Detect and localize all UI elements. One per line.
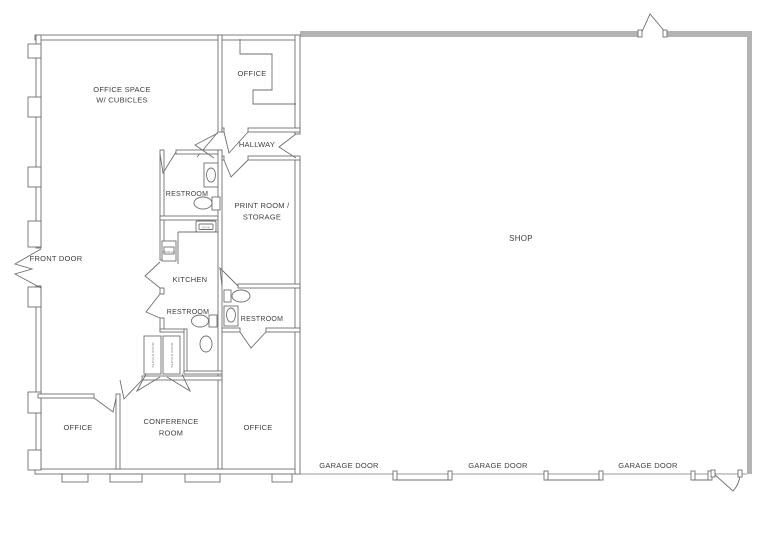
office-left-wall-upper (36, 35, 41, 248)
office-top-label: OFFICE (238, 69, 267, 78)
office-top-wall (35, 35, 300, 40)
toilet-tank (209, 315, 217, 327)
wall (160, 329, 186, 332)
shop-right-wall (747, 31, 752, 474)
office-shop-wall-lower (295, 158, 300, 474)
wall (222, 128, 224, 132)
office-left-wall-lower (36, 286, 41, 474)
pilaster (28, 167, 41, 187)
pilaster (28, 44, 41, 58)
wall (266, 328, 300, 332)
wall (222, 156, 224, 160)
sink-basin (207, 168, 216, 182)
office-bottom-wall (35, 469, 300, 474)
door-jamb (711, 470, 715, 477)
toilet-tank (212, 197, 220, 210)
office-space-label-1: OFFICE SPACE (93, 85, 150, 94)
wall (218, 35, 222, 132)
garage-door-2-label: GARAGE DOOR (468, 461, 528, 470)
restroom-mid-label: RESTROOM (167, 309, 209, 316)
restroom-mid-door (146, 294, 160, 318)
wall (38, 394, 94, 398)
window-sill (110, 474, 142, 482)
window-sill (272, 474, 292, 482)
pier (691, 471, 695, 480)
office-bottom-label: OFFICE (244, 423, 273, 432)
floor-plan-canvas: SINK FRIDGE SERVER ROOM SERVER ROOM OFFI… (0, 0, 776, 559)
restroom-mid-fixtures (192, 315, 218, 352)
window-sill (62, 474, 88, 482)
restroom-right-label: RESTROOM (241, 316, 283, 323)
restroom-upper-fixtures (194, 163, 220, 210)
print-room-top-door (224, 160, 248, 177)
shop-label: SHOP (509, 234, 533, 243)
toilet-bowl (192, 315, 209, 327)
wall (116, 394, 120, 469)
kitchen-fridge-label: FRIDGE (163, 250, 176, 254)
floor-plan-page: SINK FRIDGE SERVER ROOM SERVER ROOM OFFI… (0, 0, 776, 559)
closet-left-label: SERVER ROOM (151, 342, 155, 367)
pilaster (28, 97, 41, 117)
print-room-bottom-door (220, 268, 238, 286)
door-swing (714, 474, 740, 491)
door-jamb (638, 30, 642, 37)
office-shop-wall-upper (295, 35, 300, 134)
restroom-upper-label: RESTROOM (166, 191, 208, 198)
conference-label-1: CONFERENCE (143, 417, 198, 426)
wall (218, 376, 222, 469)
pilaster (28, 450, 41, 470)
office-bl-door (94, 398, 116, 412)
garage-wall-segments (393, 471, 712, 480)
pier (448, 471, 452, 480)
kitchen-label: KITCHEN (173, 275, 208, 284)
pier (544, 471, 548, 480)
wall (218, 150, 222, 376)
office-space-label-2: W/ CUBICLES (96, 96, 148, 105)
garage-door-3-label: GARAGE DOOR (618, 461, 678, 470)
wall (248, 128, 300, 132)
window-sill (185, 474, 220, 482)
sink-basin (227, 308, 236, 322)
conference-label-2: ROOM (159, 429, 183, 438)
front-door-label: FRONT DOOR (30, 254, 83, 263)
garage-door-1-label: GARAGE DOOR (319, 461, 379, 470)
door-jamb (738, 470, 742, 477)
toilet-tank (224, 290, 231, 302)
pier (393, 471, 397, 480)
kitchen-counter (178, 232, 218, 264)
wall (160, 216, 222, 220)
closet-right-label: SERVER ROOM (170, 342, 174, 367)
wall (160, 288, 164, 294)
restroom-right-door (240, 332, 266, 348)
toilet-bowl (194, 197, 212, 209)
shop-bottom-door (711, 470, 742, 491)
door-jamb (663, 30, 667, 37)
shop-top-wall-left (300, 31, 640, 37)
room-labels: OFFICE SPACE W/ CUBICLES OFFICE HALLWAY … (30, 69, 678, 470)
print-room-label-1: PRINT ROOM / (235, 201, 291, 210)
wall (222, 328, 240, 332)
wall (238, 284, 300, 288)
hallway-label: HALLWAY (239, 140, 275, 149)
wall (142, 376, 222, 380)
shop-top-door (638, 14, 667, 37)
shop-perimeter-walls (300, 31, 752, 474)
kitchen-sink-label: SINK (202, 225, 210, 229)
wall (176, 150, 222, 154)
wall (184, 371, 222, 374)
door-swings (94, 132, 296, 412)
wall (184, 329, 187, 374)
wall (248, 156, 300, 160)
office-bottom-left-label: OFFICE (64, 423, 93, 432)
server-closets: SERVER ROOM SERVER ROOM (144, 336, 180, 374)
pilaster (28, 287, 41, 307)
pier (599, 471, 603, 480)
shop-top-wall-right (666, 31, 752, 37)
kitchen-door (145, 262, 160, 288)
kitchen-fixtures: SINK FRIDGE (162, 221, 218, 264)
sink-basin (200, 336, 212, 352)
pilaster (28, 221, 41, 247)
toilet-bowl (232, 290, 250, 302)
door-swing (641, 14, 666, 34)
hallway-shop-door (279, 134, 296, 158)
print-room-label-2: STORAGE (243, 213, 281, 222)
